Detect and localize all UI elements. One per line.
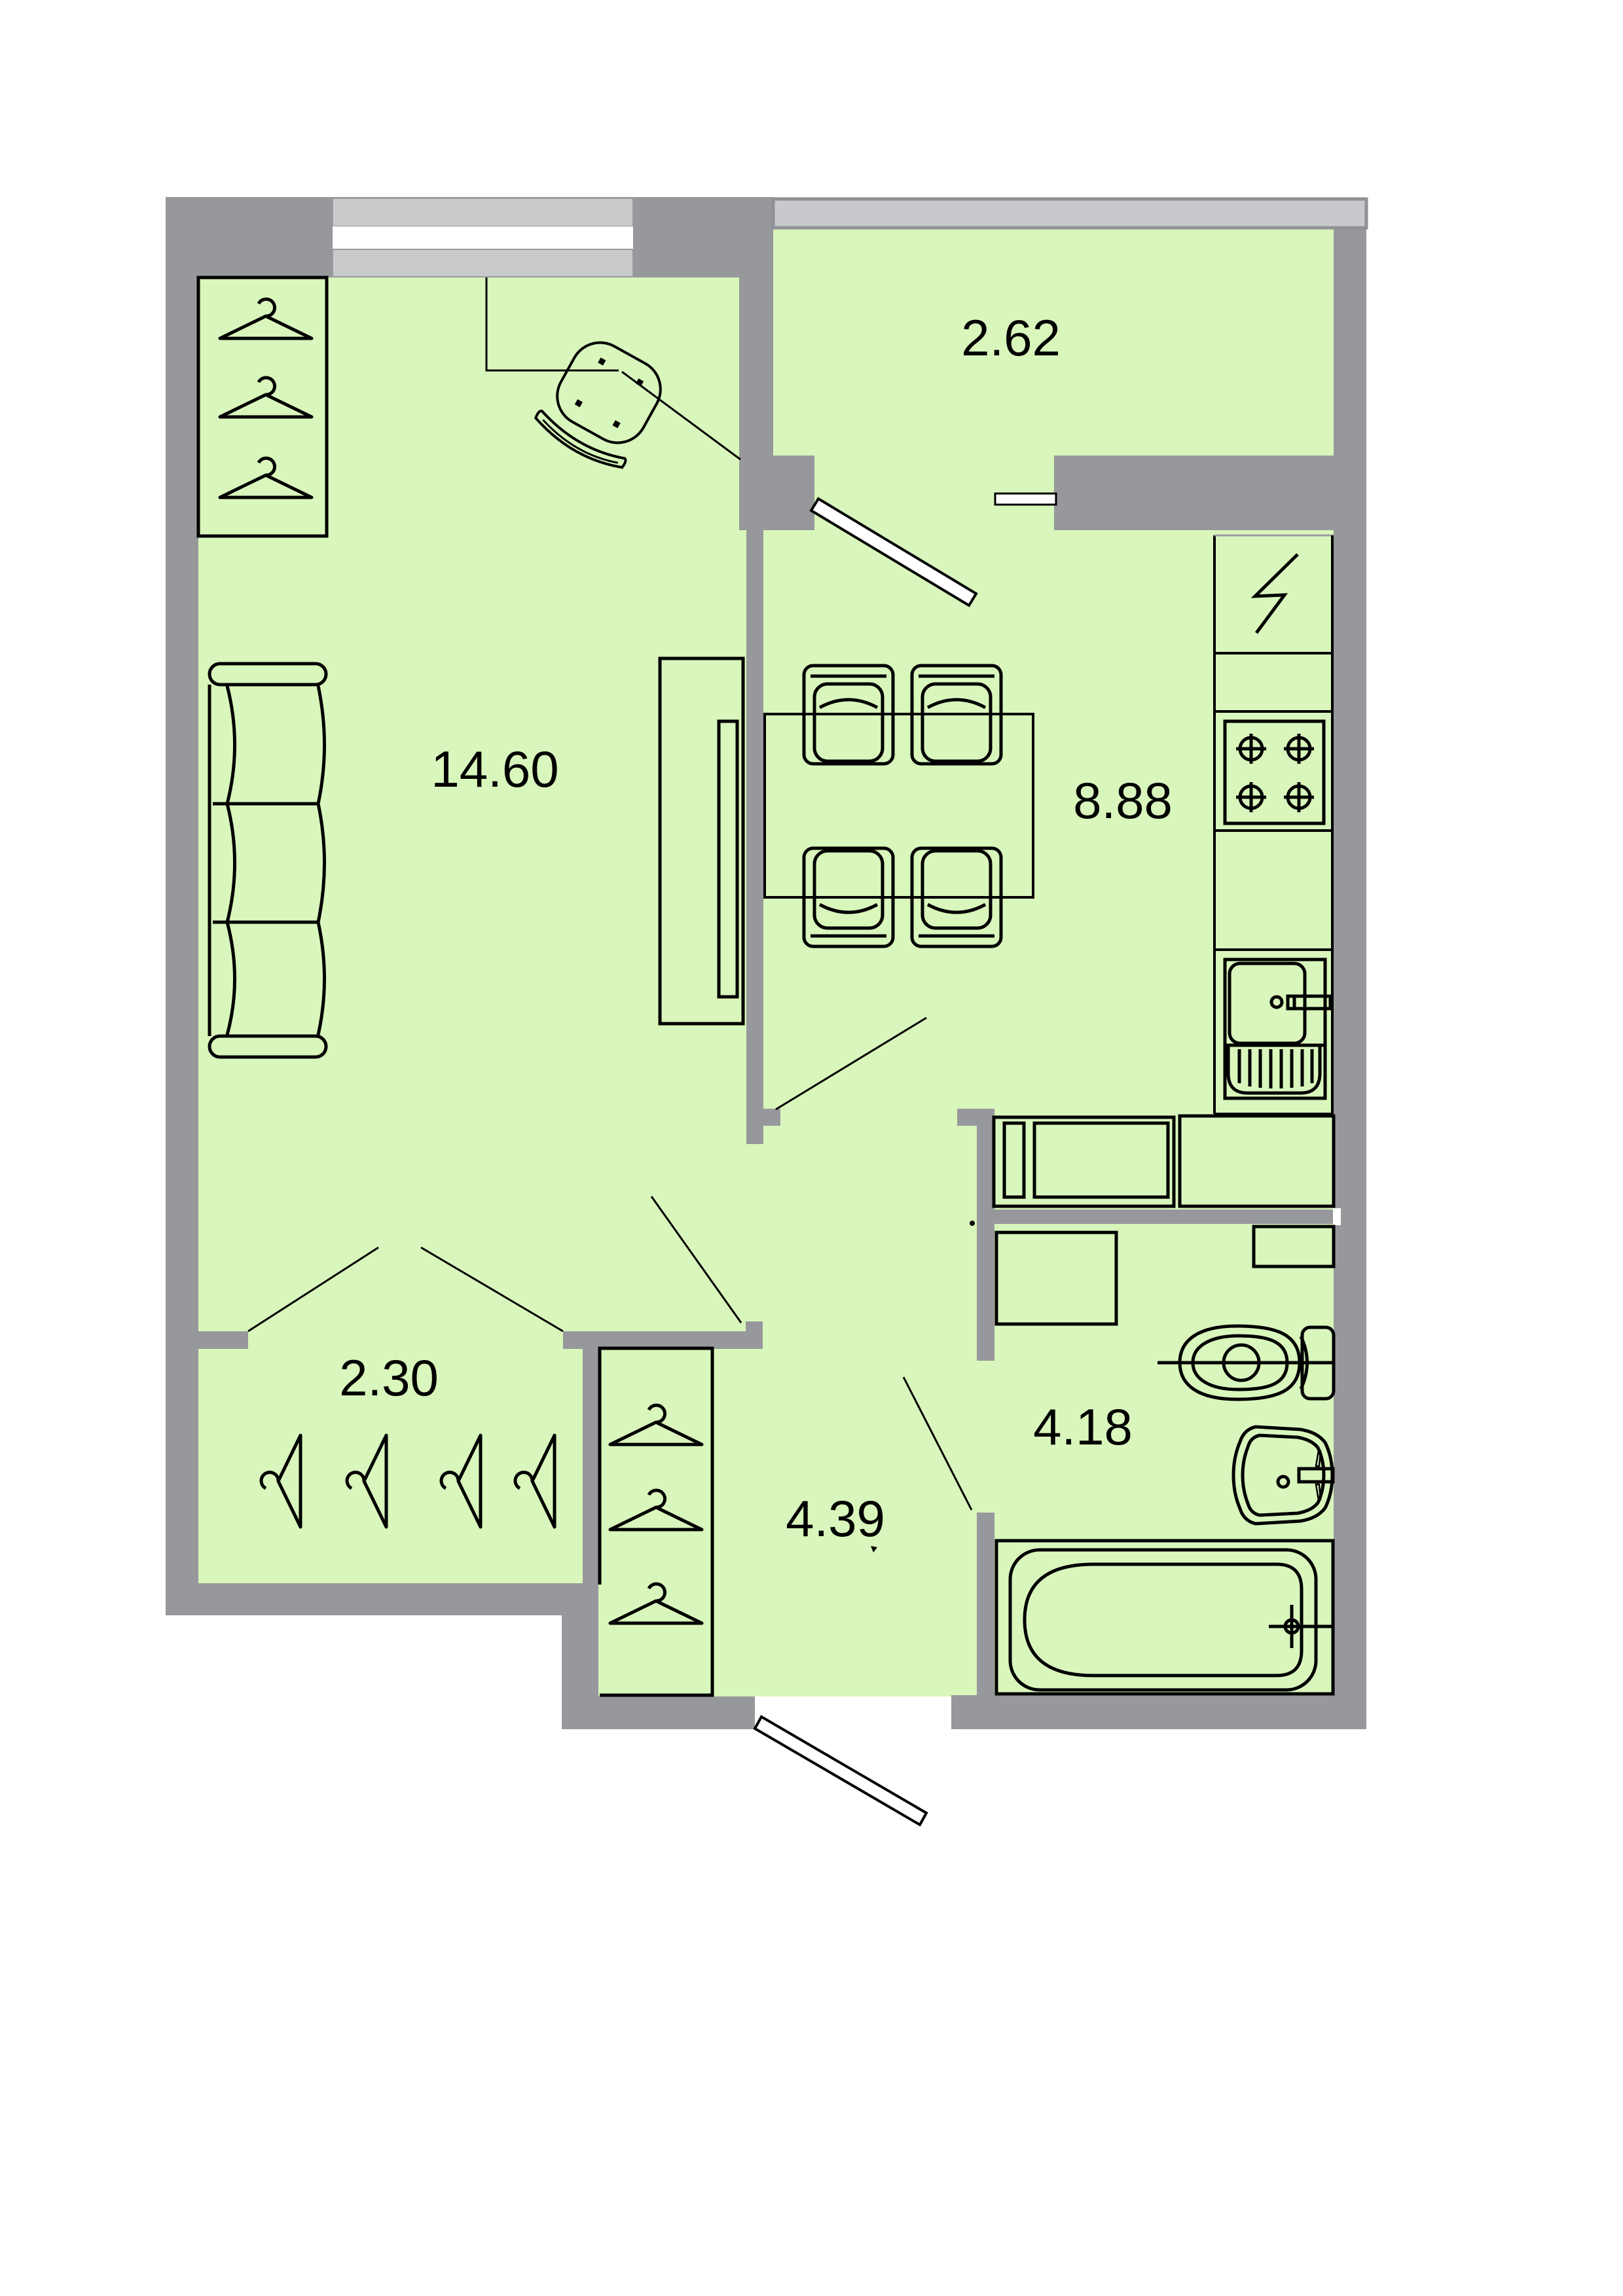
- svg-text:14.60: 14.60: [431, 740, 558, 798]
- svg-text:2.30: 2.30: [339, 1349, 439, 1407]
- svg-text:2.62: 2.62: [961, 309, 1061, 367]
- svg-text:4.18: 4.18: [1033, 1398, 1133, 1456]
- svg-text:8.88: 8.88: [1073, 772, 1173, 829]
- svg-text:4.39: 4.39: [786, 1490, 885, 1547]
